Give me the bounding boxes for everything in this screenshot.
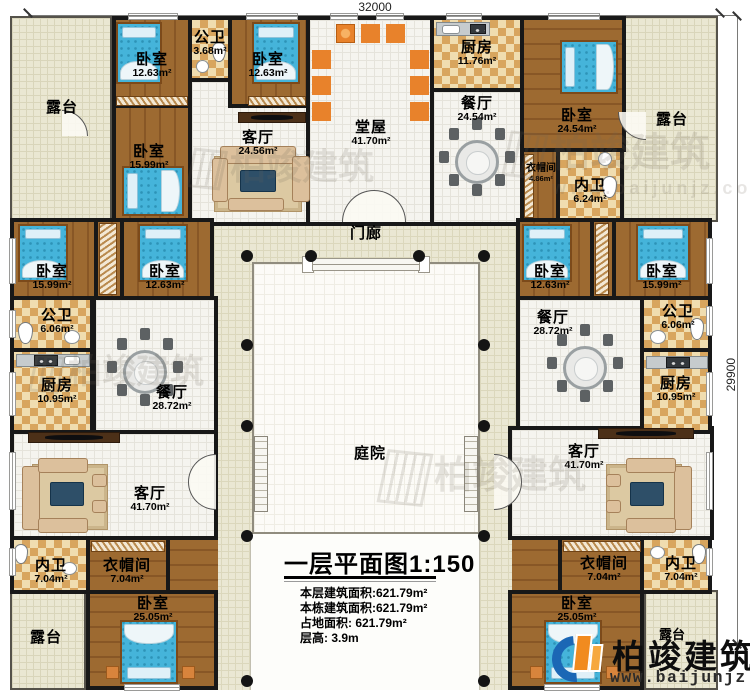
bedroom-br-corner <box>512 540 562 594</box>
room-label-kitchen: 厨房11.76m² <box>458 40 497 68</box>
nightstand <box>182 666 195 679</box>
sofa-armchair <box>292 156 310 202</box>
coffee-table <box>630 482 664 506</box>
dimension-line-top <box>28 15 737 16</box>
room-label-bath: 内卫7.04m² <box>34 558 67 586</box>
sink-icon <box>650 546 665 559</box>
bed <box>120 620 178 684</box>
tv-cabinet <box>238 112 306 123</box>
courtyard-bench <box>254 436 268 512</box>
stove <box>666 357 690 368</box>
sofa <box>626 518 676 533</box>
room-label-dining: 餐厅24.54m² <box>457 96 496 124</box>
sofa <box>38 458 88 473</box>
dimension-label-width: 32000 <box>340 0 410 14</box>
brand-logo-icon <box>550 628 610 688</box>
dimension-line-right <box>737 16 738 646</box>
room-label-bedroom: 卧室12.63m² <box>248 52 287 80</box>
room-label-cloak: 衣帽间7.04m² <box>103 558 151 586</box>
room-label-bedroom: 卧室15.99m² <box>32 264 71 292</box>
window <box>9 548 16 576</box>
window <box>9 238 16 284</box>
room-label-terrace: 露台 <box>30 630 62 646</box>
room-label-hall: 堂屋41.70m² <box>351 120 390 148</box>
coffee-table <box>240 170 276 192</box>
stove <box>470 24 486 34</box>
room-label-kitchen: 厨房10.95m² <box>656 376 695 404</box>
dining-chairs <box>580 324 590 336</box>
wardrobe-hatch <box>595 223 609 295</box>
dining-table <box>563 346 607 390</box>
room-label-living: 客厅41.70m² <box>564 444 603 472</box>
room-label-porch: 门廊 <box>350 226 382 242</box>
room-label-bath: 公卫6.06m² <box>40 308 73 336</box>
room-label-living: 客厅41.70m² <box>130 486 169 514</box>
sofa-armchair <box>92 474 107 487</box>
window <box>9 372 16 416</box>
room-label-bedroom: 卧室25.05m² <box>557 596 596 624</box>
room-label-bedroom: 卧室12.63m² <box>132 52 171 80</box>
sink-icon <box>650 330 666 344</box>
window <box>9 310 16 338</box>
tv-cabinet <box>28 432 120 443</box>
sink-icon <box>598 152 612 166</box>
sofa-armchair <box>606 500 621 513</box>
brand-logo-tower <box>589 644 604 672</box>
window <box>706 238 713 284</box>
wardrobe-hatch <box>99 223 117 295</box>
window <box>706 372 713 416</box>
window <box>706 452 713 510</box>
stat-floor-height: 层高: 3.9m <box>300 629 359 646</box>
sofa <box>38 518 88 533</box>
window <box>706 548 713 576</box>
room-label-courtyard: 庭院 <box>354 446 386 462</box>
kitchen-sink <box>64 356 80 365</box>
room-label-terrace: 露台 <box>656 112 688 128</box>
coffee-table <box>50 482 84 506</box>
room-label-bath: 内卫6.24m² <box>573 178 606 206</box>
room-terrace-top-left <box>10 16 112 220</box>
title-underline-thin <box>284 581 436 582</box>
sofa-armchair <box>606 474 621 487</box>
room-label-bedroom: 卧室24.54m² <box>557 108 596 136</box>
room-label-kitchen: 厨房10.95m² <box>37 378 76 406</box>
room-label-terrace: 露台 <box>46 100 78 116</box>
tv-cabinet <box>598 428 694 439</box>
window <box>9 452 16 510</box>
room-label-cloak: 衣帽间7.04m² <box>580 556 628 584</box>
sink-icon <box>196 60 209 73</box>
brand-url: www.baijunjz.com <box>610 668 750 687</box>
window <box>706 306 713 336</box>
window <box>124 684 180 691</box>
plan-title-scale: 1:150 <box>409 551 475 578</box>
kitchen-sink <box>442 25 460 34</box>
room-label-cloak: 衣帽间4.86m² <box>526 164 556 183</box>
floor-plan: 32000 29900 <box>0 0 750 696</box>
nightstand <box>530 666 543 679</box>
wardrobe-hatch <box>248 96 306 106</box>
room-label-dining: 餐厅28.72m² <box>533 310 572 338</box>
dining-chairs <box>140 328 150 340</box>
sofa-stools <box>228 198 284 211</box>
plan-title-text: 一层平面图 <box>284 551 409 578</box>
title-underline <box>284 576 436 579</box>
room-label-bedroom: 卧室15.99m² <box>129 144 168 172</box>
courtyard-step <box>312 258 420 271</box>
bed <box>560 40 618 94</box>
brand-logo: 柏竣建筑 www.baijunjz.com <box>550 626 750 692</box>
sofa-armchair <box>212 158 228 202</box>
stove <box>34 355 58 366</box>
room-label-bath: 内卫7.04m² <box>664 556 697 584</box>
porch-columns <box>241 250 253 262</box>
bedroom-bl-corner <box>170 540 218 594</box>
room-label-bath: 公卫3.68m² <box>193 30 226 58</box>
room-label-bath: 公卫6.06m² <box>661 304 694 332</box>
room-label-dining: 餐厅28.72m² <box>152 385 191 413</box>
sofa <box>626 458 676 473</box>
wardrobe-hatch <box>563 541 641 552</box>
room-label-bedroom: 卧室12.63m² <box>145 264 184 292</box>
courtyard-bench <box>464 436 478 512</box>
room-label-bedroom: 卧室15.99m² <box>642 264 681 292</box>
room-label-bedroom: 卧室25.05m² <box>133 596 172 624</box>
dining-table <box>455 140 499 184</box>
room-label-bedroom: 卧室12.63m² <box>530 264 569 292</box>
dimension-label-height: 29900 <box>724 358 738 391</box>
room-courtyard <box>252 262 480 534</box>
room-label-living: 客厅24.56m² <box>238 130 277 158</box>
wardrobe-hatch <box>116 96 188 106</box>
hall-chairs <box>336 24 355 43</box>
sofa <box>674 466 692 530</box>
nightstand <box>106 666 119 679</box>
wardrobe-hatch <box>91 541 165 552</box>
plan-title: 一层平面图1:150 <box>284 544 475 579</box>
sofa-armchair <box>92 500 107 513</box>
bed <box>122 166 184 216</box>
